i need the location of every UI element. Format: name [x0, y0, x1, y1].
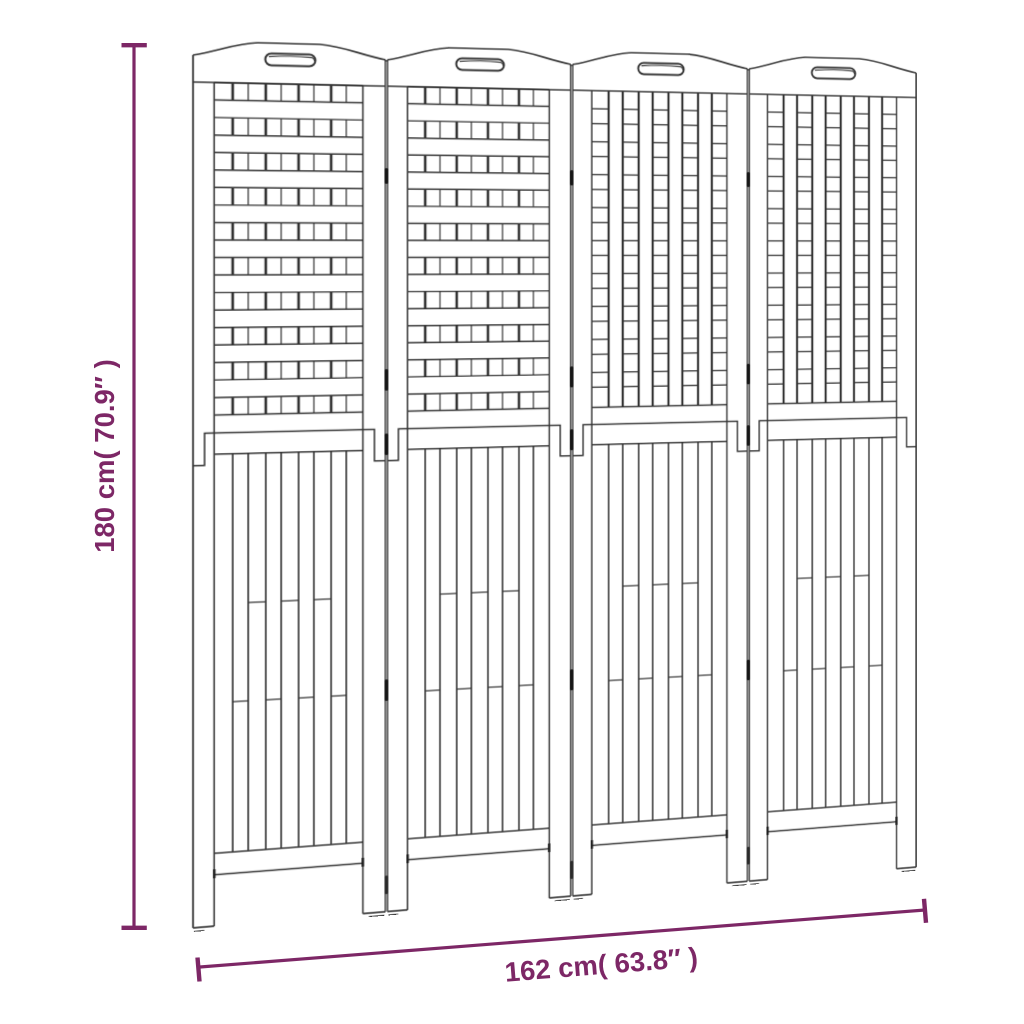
svg-text:162 cm( 63.8″ ): 162 cm( 63.8″ ): [504, 941, 699, 987]
svg-text:180 cm( 70.9″ ): 180 cm( 70.9″ ): [89, 359, 120, 553]
